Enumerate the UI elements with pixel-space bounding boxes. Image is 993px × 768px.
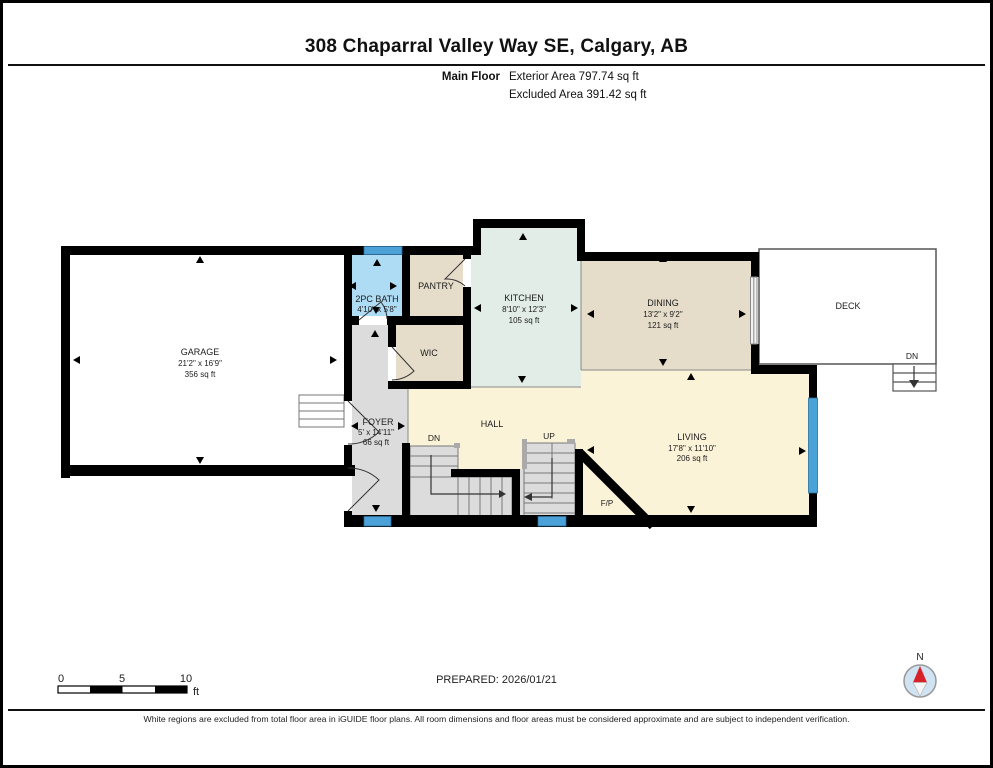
stairs-up [522, 439, 575, 521]
deck-down-label: DN [906, 351, 918, 361]
kitchen-label: KITCHEN [504, 293, 544, 303]
kitchen-dims: 8'10" x 12'3" [502, 305, 546, 314]
stairs-up-label: UP [543, 431, 555, 441]
deck-stairs [893, 364, 936, 391]
living-area: 206 sq ft [677, 454, 708, 463]
disclaimer-text: White regions are excluded from total fl… [3, 714, 990, 724]
living-dims: 17'8" x 11'10" [668, 444, 716, 453]
pantry-label: PANTRY [418, 281, 454, 291]
foyer-dims: 5' x 14'11" [358, 428, 394, 437]
footer-divider [8, 709, 985, 711]
garage-label: GARAGE [181, 347, 220, 357]
deck-label: DECK [835, 301, 860, 311]
foyer-floor-lower [352, 389, 408, 515]
stair-gap [520, 469, 524, 521]
stairs-down-label: DN [428, 433, 440, 443]
window [538, 517, 566, 527]
foyer-label: FOYER [362, 417, 394, 427]
window [809, 398, 818, 493]
bath-dims: 4'10" x 5'8" [357, 305, 397, 314]
floorplan-page: 308 Chaparral Valley Way SE, Calgary, AB… [0, 0, 993, 768]
wic-label: WIC [420, 348, 438, 358]
prepared-date: PREPARED: 2026/01/21 [3, 674, 990, 686]
dining-label: DINING [647, 298, 679, 308]
garage-steps [299, 395, 344, 427]
kitchen-bump-floor [481, 228, 577, 258]
dining-area: 121 sq ft [648, 321, 679, 330]
floorplan-drawing: GARAGE 21'2" x 16'9" 356 sq ft 2PC BATH … [3, 3, 993, 768]
foyer-area: 66 sq ft [363, 438, 390, 447]
patio-door [751, 277, 758, 344]
living-label: LIVING [677, 432, 707, 442]
garage-dims: 21'2" x 16'9" [178, 359, 222, 368]
dining-dims: 13'2" x 9'2" [643, 310, 683, 319]
bath-label: 2PC BATH [355, 294, 398, 304]
garage-area: 356 sq ft [185, 370, 216, 379]
hall-label: HALL [481, 419, 504, 429]
kitchen-area: 105 sq ft [509, 316, 540, 325]
window [364, 517, 391, 527]
fireplace-label: F/P [601, 499, 613, 508]
window [364, 247, 402, 255]
scale-unit: ft [193, 686, 199, 698]
compass-north-label: N [916, 652, 923, 663]
foyer-floor-upper [352, 325, 388, 389]
